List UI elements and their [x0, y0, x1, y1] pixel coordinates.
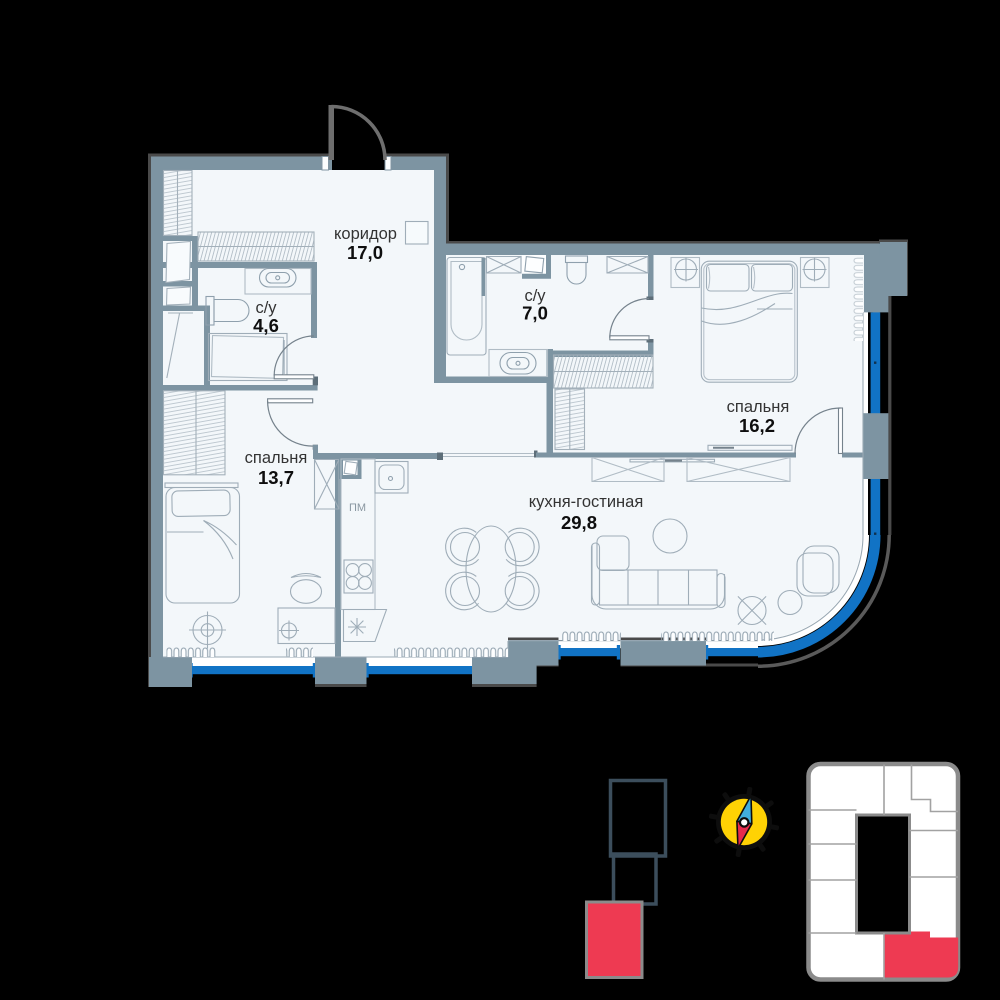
- svg-text:7,0: 7,0: [522, 303, 548, 324]
- svg-text:спальня: спальня: [245, 449, 308, 467]
- svg-text:ПМ: ПМ: [349, 502, 366, 514]
- svg-text:4,6: 4,6: [253, 315, 279, 336]
- svg-text:кухня-гостиная: кухня-гостиная: [529, 493, 644, 511]
- svg-text:29,8: 29,8: [561, 512, 597, 533]
- svg-text:коридор: коридор: [334, 225, 397, 243]
- svg-text:17,0: 17,0: [347, 242, 383, 263]
- svg-text:16,2: 16,2: [739, 415, 775, 436]
- svg-text:13,7: 13,7: [258, 467, 294, 488]
- svg-text:спальня: спальня: [727, 398, 790, 416]
